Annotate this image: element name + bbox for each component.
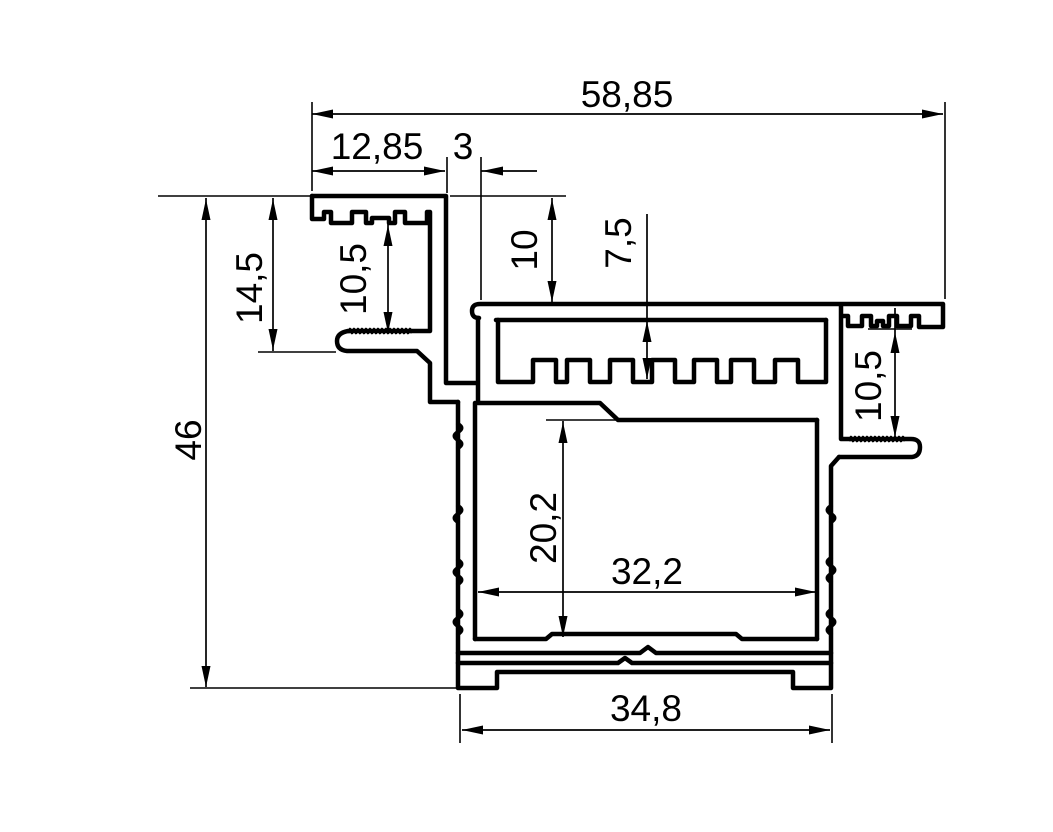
dimension-flange-width: 12,85 bbox=[312, 126, 445, 176]
arrowhead bbox=[478, 588, 499, 597]
arrowhead bbox=[891, 416, 900, 437]
left-knurled-flange bbox=[337, 331, 458, 402]
arrowhead bbox=[462, 726, 483, 735]
dimension-base-width: 34,8 bbox=[462, 688, 830, 735]
dim-label-flange-width: 12,85 bbox=[331, 126, 424, 167]
cavity-floor bbox=[475, 634, 817, 639]
dim-label-base-width: 34,8 bbox=[610, 688, 682, 729]
dim-label-left-flange-height: 14,5 bbox=[229, 252, 270, 324]
dimension-cavity-height: 20,2 bbox=[523, 421, 568, 637]
dimension-slot-gap: 3 bbox=[453, 126, 537, 176]
dim-label-top-step-depth: 10 bbox=[504, 229, 545, 270]
wall-wiggles bbox=[455, 424, 835, 634]
dim-label-right-channel-opening: 10,5 bbox=[848, 350, 889, 422]
arrowhead bbox=[202, 666, 211, 687]
dim-label-overall-width: 58,85 bbox=[581, 74, 674, 115]
dimension-overall-width: 58,85 bbox=[312, 74, 943, 119]
dim-label-comb-depth: 7,5 bbox=[598, 217, 639, 268]
base-plate-top bbox=[458, 658, 831, 663]
dim-label-cavity-width: 32,2 bbox=[611, 551, 683, 592]
right-channel-teeth bbox=[843, 305, 943, 327]
profile-drawing-svg: 58,85 12,85 3 10 7,5 10,5 14,5 bbox=[0, 0, 1053, 832]
dim-label-left-channel-opening: 10,5 bbox=[333, 243, 374, 315]
arrowhead bbox=[809, 726, 830, 735]
dimension-overall-height: 46 bbox=[168, 198, 211, 687]
arrowhead bbox=[548, 199, 557, 220]
profile-outline bbox=[312, 196, 943, 688]
dimension-left-channel-opening: 10,5 bbox=[333, 224, 393, 334]
arrowhead bbox=[548, 281, 557, 302]
dim-label-overall-height: 46 bbox=[168, 419, 209, 460]
arrowhead bbox=[922, 110, 943, 119]
arrowhead bbox=[312, 110, 333, 119]
arrowhead bbox=[269, 199, 278, 220]
arrowhead bbox=[269, 329, 278, 350]
arrowhead bbox=[384, 225, 393, 246]
arrowhead bbox=[643, 321, 652, 342]
arrowhead bbox=[202, 199, 211, 220]
arrowhead bbox=[559, 422, 568, 443]
dim-label-cavity-height: 20,2 bbox=[523, 492, 564, 564]
dimension-top-step-depth: 10 bbox=[504, 198, 557, 302]
dimension-left-flange-height: 14,5 bbox=[229, 198, 278, 351]
dim-label-slot-gap: 3 bbox=[453, 126, 474, 167]
arrowhead bbox=[795, 588, 816, 597]
arrowhead bbox=[312, 167, 333, 176]
box-outer-bottom bbox=[458, 647, 831, 653]
arrowhead bbox=[424, 167, 445, 176]
arrowhead bbox=[891, 332, 900, 353]
dimension-comb-depth: 7,5 bbox=[598, 214, 652, 379]
arrowhead bbox=[482, 167, 503, 176]
cavity-ceiling-step bbox=[478, 384, 817, 420]
drawing-canvas: 58,85 12,85 3 10 7,5 10,5 14,5 bbox=[0, 0, 1053, 832]
comb-channel-teeth bbox=[498, 320, 826, 382]
